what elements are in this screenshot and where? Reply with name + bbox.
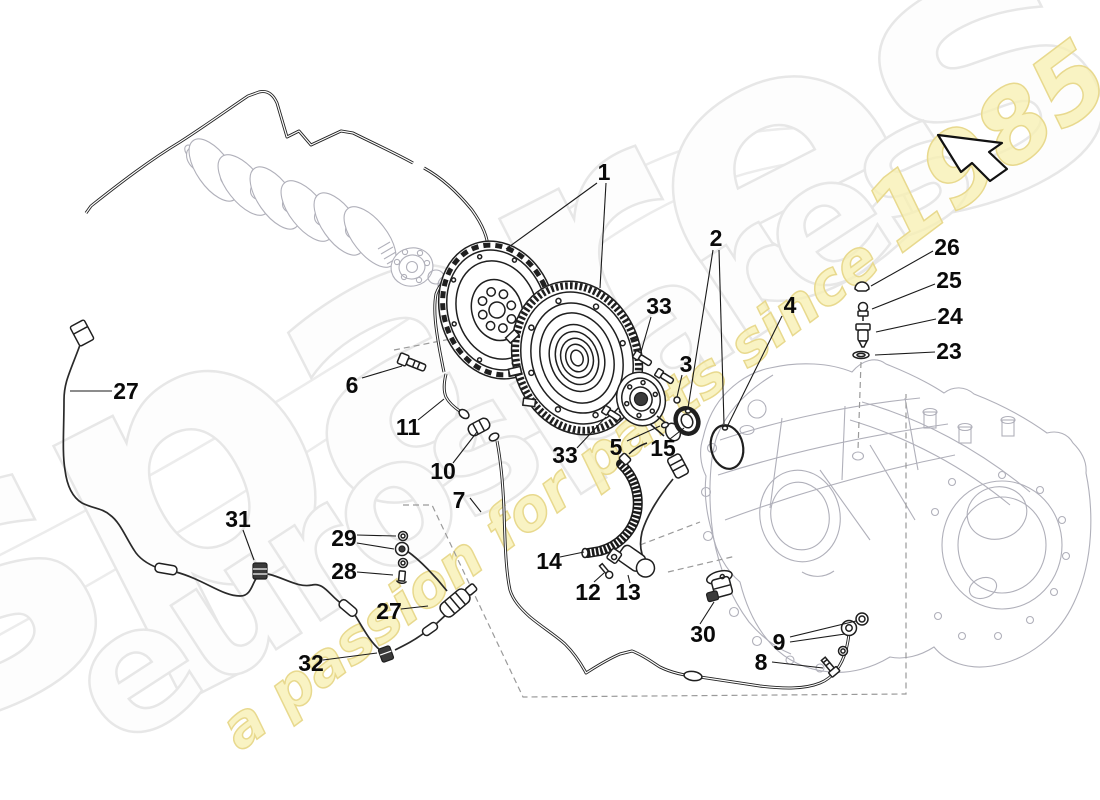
callout-29[interactable]: 29 bbox=[331, 525, 357, 551]
callout-4[interactable]: 4 bbox=[784, 292, 797, 318]
callout-10[interactable]: 10 bbox=[430, 458, 456, 484]
callout-9[interactable]: 9 bbox=[773, 629, 786, 655]
callout-6[interactable]: 6 bbox=[346, 372, 359, 398]
callout-2[interactable]: 2 bbox=[710, 225, 723, 251]
callout-1[interactable]: 1 bbox=[598, 159, 611, 185]
callout-15[interactable]: 15 bbox=[650, 435, 676, 461]
parts-diagram-canvas: eurospares eurospares a passion for part… bbox=[0, 0, 1100, 800]
callout-31[interactable]: 31 bbox=[225, 506, 251, 532]
callout-27[interactable]: 27 bbox=[113, 378, 139, 404]
callout-5[interactable]: 5 bbox=[610, 434, 623, 460]
leader-line-8 bbox=[772, 662, 823, 668]
callout-26[interactable]: 26 bbox=[934, 234, 960, 260]
callout-23[interactable]: 23 bbox=[936, 338, 962, 364]
callout-3[interactable]: 3 bbox=[680, 351, 693, 377]
callout-30[interactable]: 30 bbox=[690, 621, 716, 647]
callout-8[interactable]: 8 bbox=[755, 649, 768, 675]
leader-line-14 bbox=[560, 552, 584, 557]
callout-11[interactable]: 11 bbox=[396, 414, 421, 440]
callout-33[interactable]: 33 bbox=[646, 293, 672, 319]
banjo-bolt-8 bbox=[819, 656, 840, 678]
callout-24[interactable]: 24 bbox=[937, 303, 963, 329]
callout-28[interactable]: 28 bbox=[331, 558, 357, 584]
callout-13[interactable]: 13 bbox=[615, 579, 641, 605]
cable-clamp-31 bbox=[253, 563, 267, 579]
callout-14[interactable]: 14 bbox=[536, 548, 562, 574]
callout-33[interactable]: 33 bbox=[552, 442, 578, 468]
gear-sensor-30 bbox=[701, 568, 737, 602]
callout-32[interactable]: 32 bbox=[298, 650, 324, 676]
callout-12[interactable]: 12 bbox=[575, 579, 601, 605]
callout-25[interactable]: 25 bbox=[936, 267, 962, 293]
diagram-line-art: eurospares eurospares a passion for part… bbox=[0, 0, 1100, 800]
callout-27[interactable]: 27 bbox=[376, 598, 402, 624]
callout-7[interactable]: 7 bbox=[453, 487, 466, 513]
